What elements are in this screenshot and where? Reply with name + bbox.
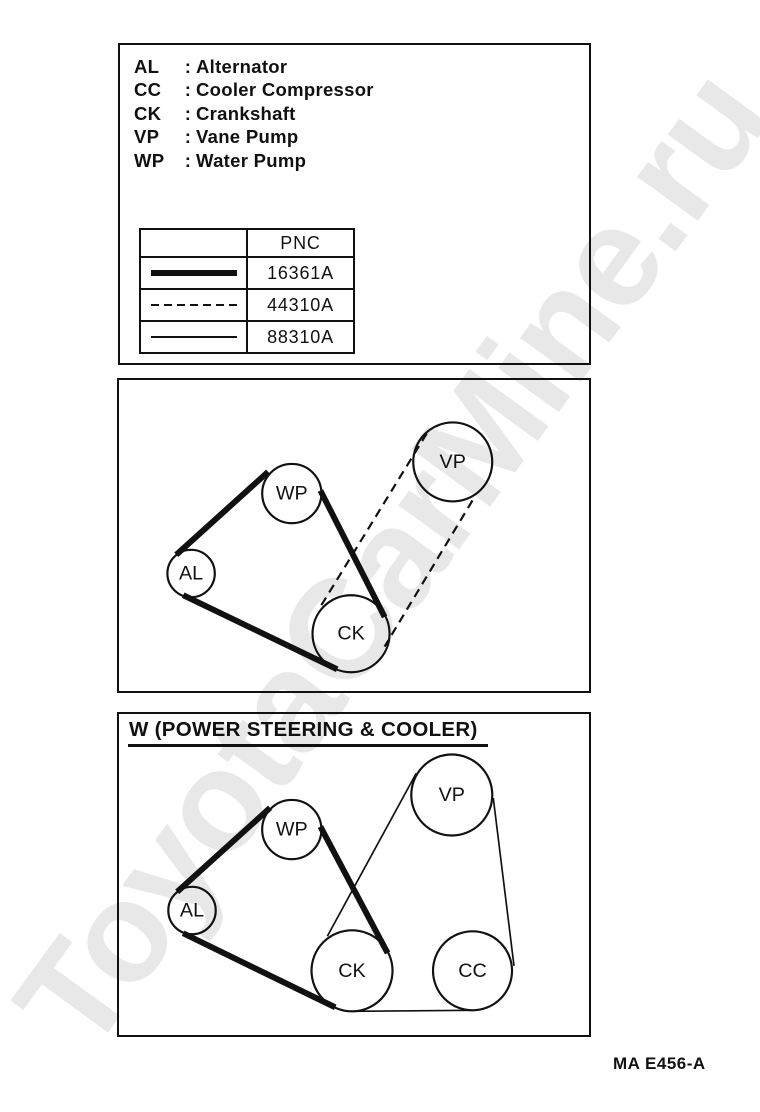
table-row: 16361A — [140, 257, 354, 289]
legend-abbr: AL — [134, 56, 180, 78]
legend-row: VP : Vane Pump — [134, 126, 374, 150]
belt-88310A-segment — [352, 1010, 472, 1011]
pnc-table-pnc-header: PNC — [247, 229, 354, 257]
pulley-label-AL: AL — [179, 563, 203, 585]
legend-abbr: CK — [134, 103, 180, 125]
pulley-label-CC: CC — [458, 960, 487, 982]
legend-abbr: VP — [134, 126, 180, 148]
diagram-title: W (POWER STEERING & COOLER) — [128, 718, 488, 747]
belt-16361A-segment — [177, 808, 270, 892]
legend-name: Alternator — [196, 56, 374, 78]
figure-code: MA E456-A — [613, 1054, 706, 1074]
belt-diagram-power-steering-cooler-canvas: WPALCKVPCC — [119, 714, 589, 1035]
legend-separator: : — [180, 56, 196, 78]
table-row: 44310A — [140, 289, 354, 321]
legend-separator: : — [180, 103, 196, 125]
belt-line-sample — [151, 336, 237, 338]
legend-name: Vane Pump — [196, 126, 374, 148]
pulley-label-CK: CK — [338, 960, 365, 982]
legend-row: AL : Alternator — [134, 55, 374, 79]
belt-44310A-segment — [385, 500, 473, 646]
legend-abbr: CC — [134, 79, 180, 101]
legend-row: WP : Water Pump — [134, 149, 374, 173]
belt-88310A-segment — [327, 773, 416, 936]
pulley-label-VP: VP — [440, 451, 466, 473]
legend-name: Cooler Compressor — [196, 79, 374, 101]
legend-separator: : — [180, 79, 196, 101]
legend-separator: : — [180, 126, 196, 148]
legend-name: Crankshaft — [196, 103, 374, 125]
abbreviation-legend: AL : Alternator CC : Cooler Compressor C… — [134, 55, 374, 173]
pulley-label-CK: CK — [337, 623, 364, 645]
pulley-label-VP: VP — [439, 784, 465, 806]
pulley-label-WP: WP — [276, 483, 308, 505]
pulley-label-AL: AL — [180, 900, 204, 922]
legend-name: Water Pump — [196, 150, 374, 172]
legend-box: AL : Alternator CC : Cooler Compressor C… — [118, 43, 591, 365]
belt-line-sample — [151, 304, 237, 307]
pnc-value: 88310A — [247, 321, 354, 353]
pnc-table-sample-header — [140, 229, 247, 257]
table-row: 88310A — [140, 321, 354, 353]
belt-diagram-standard-box: WPALCKVP — [117, 378, 591, 693]
belt-diagram-power-steering-cooler-box: W (POWER STEERING & COOLER) WPALCKVPCC — [117, 712, 591, 1037]
legend-separator: : — [180, 150, 196, 172]
belt-16361A-segment — [176, 472, 268, 555]
pulley-label-WP: WP — [276, 819, 308, 841]
legend-row: CK : Crankshaft — [134, 102, 374, 126]
legend-abbr: WP — [134, 150, 180, 172]
pnc-table: PNC 16361A 44310A 88310A — [139, 228, 355, 354]
belt-diagram-standard-canvas: WPALCKVP — [119, 380, 589, 691]
belt-line-sample — [151, 270, 237, 276]
pnc-table-header-row: PNC — [140, 229, 354, 257]
pnc-value: 44310A — [247, 289, 354, 321]
belt-16361A-segment — [183, 595, 337, 669]
pnc-value: 16361A — [247, 257, 354, 289]
legend-row: CC : Cooler Compressor — [134, 79, 374, 103]
catalog-page: ToyotaCarMine.ru AL : Alternator CC : Co… — [0, 0, 760, 1112]
